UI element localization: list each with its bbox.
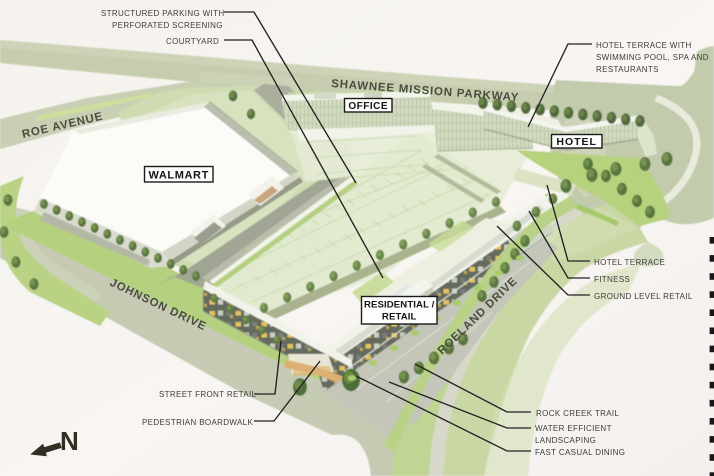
svg-text:SWIMMING POOL, SPA AND: SWIMMING POOL, SPA AND xyxy=(596,53,709,62)
svg-text:COURTYARD: COURTYARD xyxy=(166,37,219,46)
svg-text:RESIDENTIAL /: RESIDENTIAL / xyxy=(364,300,435,311)
svg-text:ROCK CREEK TRAIL: ROCK CREEK TRAIL xyxy=(536,409,619,418)
svg-text:RETAIL: RETAIL xyxy=(382,312,417,323)
svg-text:STRUCTURED PARKING WITH: STRUCTURED PARKING WITH xyxy=(101,9,224,18)
svg-text:STREET FRONT RETAIL: STREET FRONT RETAIL xyxy=(159,390,257,399)
svg-text:PEDESTRIAN BOARDWALK: PEDESTRIAN BOARDWALK xyxy=(142,418,253,427)
svg-text:GROUND LEVEL RETAIL: GROUND LEVEL RETAIL xyxy=(594,292,693,301)
svg-text:WATER EFFICIENT: WATER EFFICIENT xyxy=(535,424,612,433)
svg-text:LANDSCAPING: LANDSCAPING xyxy=(535,436,596,445)
svg-text:N: N xyxy=(60,426,79,456)
svg-text:FITNESS: FITNESS xyxy=(594,275,630,284)
svg-text:HOTEL: HOTEL xyxy=(556,136,597,148)
svg-text:RESTAURANTS: RESTAURANTS xyxy=(596,65,659,74)
svg-text:WALMART: WALMART xyxy=(148,169,208,181)
svg-text:PERFORATED SCREENING: PERFORATED SCREENING xyxy=(112,21,223,30)
svg-text:HOTEL TERRACE WITH: HOTEL TERRACE WITH xyxy=(596,41,692,50)
svg-text:HOTEL TERRACE: HOTEL TERRACE xyxy=(594,258,665,267)
svg-text:FAST CASUAL DINING: FAST CASUAL DINING xyxy=(535,448,625,457)
svg-text:OFFICE: OFFICE xyxy=(348,101,388,112)
